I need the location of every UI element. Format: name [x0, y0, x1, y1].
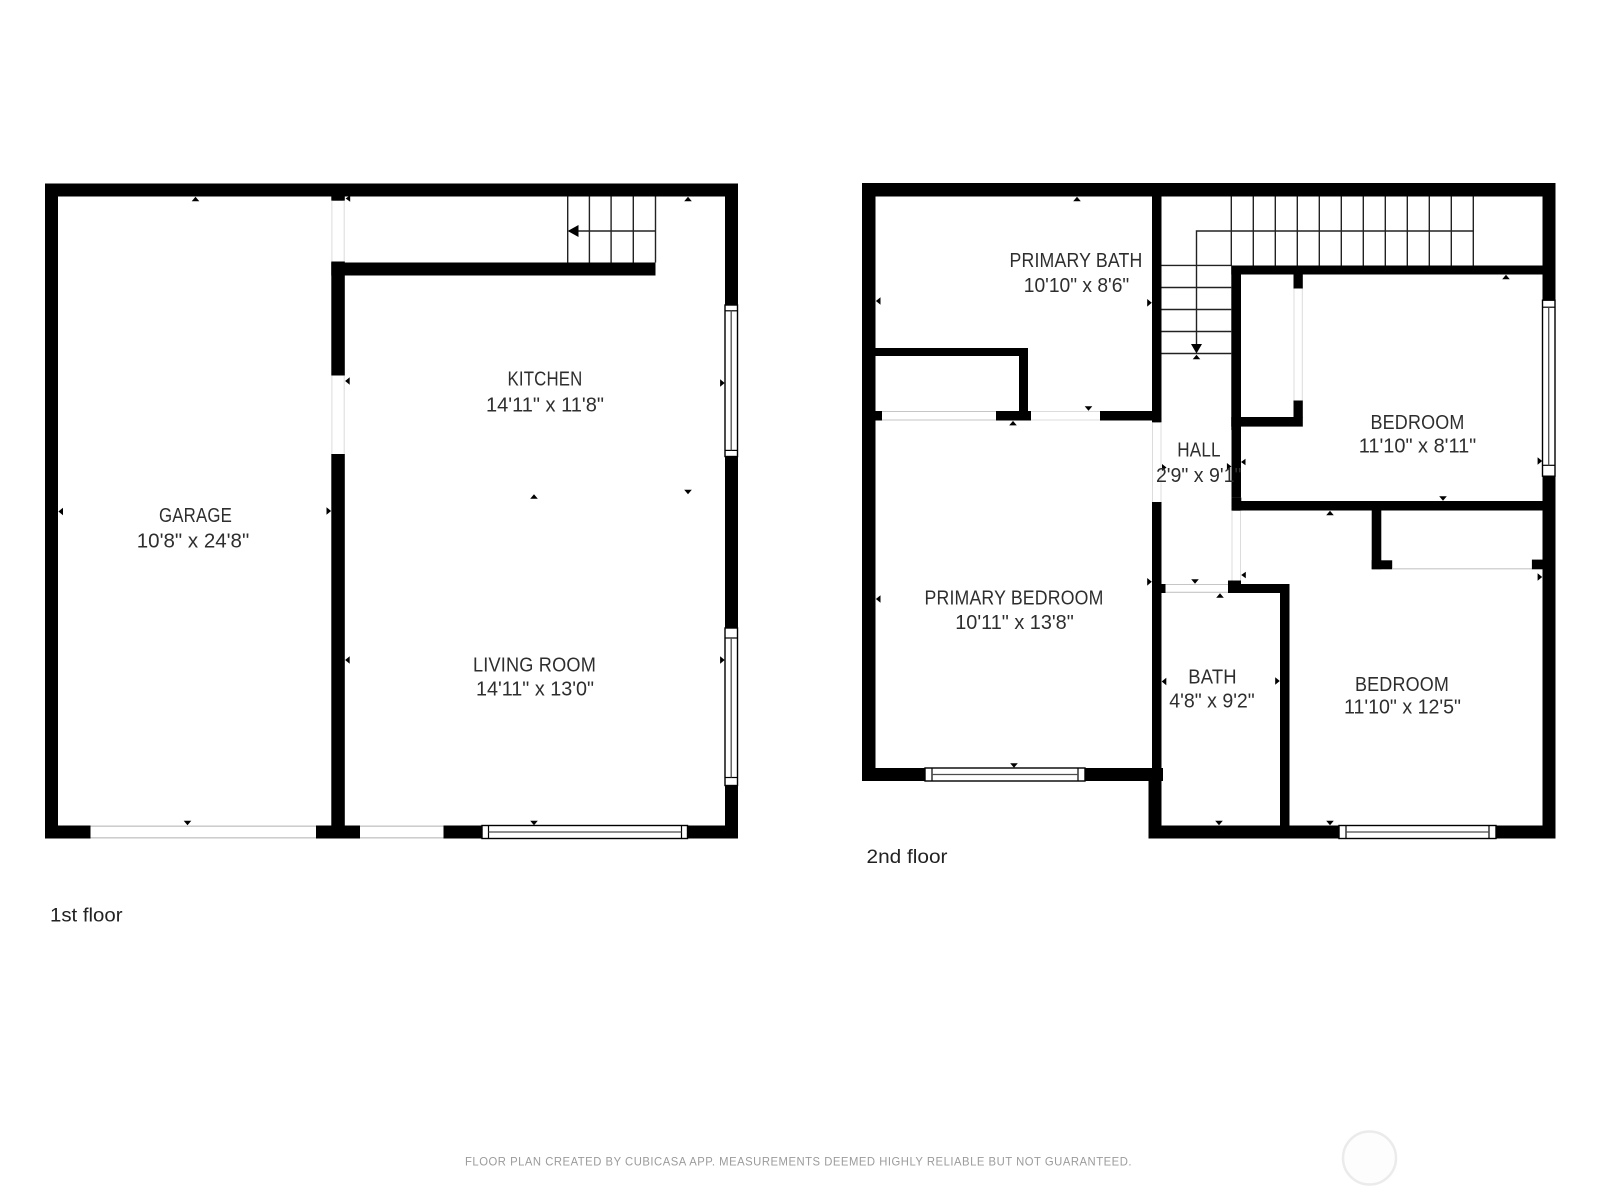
svg-text:2'9" x 9'1": 2'9" x 9'1": [1156, 465, 1242, 487]
svg-text:FLOOR PLAN CREATED BY CUBICASA: FLOOR PLAN CREATED BY CUBICASA APP. MEAS…: [465, 1155, 1132, 1169]
svg-text:PRIMARY BEDROOM: PRIMARY BEDROOM: [925, 588, 1104, 610]
svg-text:14'11" x 11'8": 14'11" x 11'8": [486, 395, 604, 417]
svg-text:2nd floor: 2nd floor: [867, 847, 949, 868]
svg-text:HALL: HALL: [1177, 440, 1221, 462]
svg-text:BATH: BATH: [1188, 667, 1237, 689]
svg-text:10'11" x 13'8": 10'11" x 13'8": [955, 612, 1074, 634]
svg-text:BEDROOM: BEDROOM: [1355, 674, 1449, 696]
svg-text:10'10" x 8'6": 10'10" x 8'6": [1024, 275, 1130, 297]
svg-text:11'10" x 8'11": 11'10" x 8'11": [1359, 436, 1477, 458]
svg-text:10'8" x 24'8": 10'8" x 24'8": [137, 531, 250, 553]
svg-text:KITCHEN: KITCHEN: [508, 369, 583, 391]
svg-text:PRIMARY BATH: PRIMARY BATH: [1010, 250, 1143, 272]
svg-text:BEDROOM: BEDROOM: [1371, 412, 1465, 434]
svg-text:11'10" x 12'5": 11'10" x 12'5": [1344, 697, 1461, 719]
svg-text:LIVING ROOM: LIVING ROOM: [473, 655, 596, 677]
svg-text:1st floor: 1st floor: [50, 906, 123, 927]
svg-text:14'11" x 13'0": 14'11" x 13'0": [476, 679, 594, 701]
svg-text:GARAGE: GARAGE: [159, 505, 232, 527]
svg-text:4'8" x 9'2": 4'8" x 9'2": [1169, 691, 1255, 713]
